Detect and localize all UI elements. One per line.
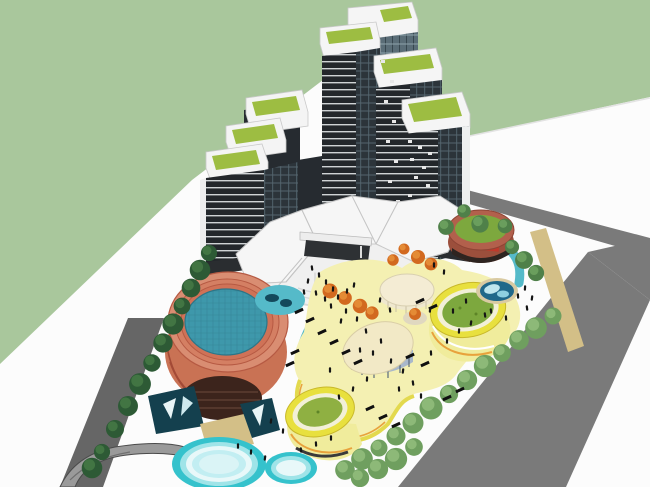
light_row-tree-highlight bbox=[407, 439, 417, 449]
dark_row-tree-highlight bbox=[165, 315, 177, 327]
green_cluster-tree-highlight bbox=[499, 220, 507, 228]
dark_row-tree-highlight bbox=[192, 261, 203, 272]
tower-window bbox=[381, 60, 385, 63]
person bbox=[356, 316, 359, 322]
orange-tree-highlight bbox=[354, 300, 362, 308]
person bbox=[505, 315, 508, 321]
dark_row-tree-highlight bbox=[131, 375, 143, 387]
orange-tree-highlight bbox=[324, 285, 332, 293]
person bbox=[380, 338, 383, 344]
dark_row-tree-highlight bbox=[203, 246, 212, 255]
orange-tree-highlight bbox=[367, 307, 374, 314]
person bbox=[420, 393, 422, 398]
green_cluster-tree-highlight bbox=[529, 266, 538, 275]
person bbox=[465, 298, 468, 304]
person bbox=[433, 262, 435, 267]
light_row-tree-highlight bbox=[388, 428, 398, 438]
light_row-tree-highlight bbox=[511, 332, 522, 343]
person bbox=[458, 328, 461, 334]
person bbox=[524, 285, 527, 291]
dark_row-tree-highlight bbox=[145, 356, 155, 366]
pool-2-center bbox=[276, 460, 306, 476]
orange-tree-highlight bbox=[388, 255, 394, 261]
person bbox=[359, 347, 362, 353]
dark_row-tree-highlight bbox=[184, 280, 194, 290]
light_row-tree-highlight bbox=[405, 414, 417, 426]
person bbox=[315, 441, 318, 447]
green_cluster-tree-highlight bbox=[440, 220, 449, 229]
orange-tree-highlight bbox=[412, 251, 420, 259]
person bbox=[372, 350, 374, 355]
person bbox=[337, 294, 339, 299]
tower-window bbox=[386, 140, 390, 143]
dark_row-tree-highlight bbox=[175, 299, 184, 308]
person bbox=[345, 308, 347, 313]
person bbox=[250, 449, 253, 455]
dark_row-tree-highlight bbox=[84, 459, 95, 470]
architectural-render bbox=[0, 0, 650, 487]
person bbox=[330, 435, 332, 440]
person bbox=[237, 443, 239, 448]
pool-1-center bbox=[199, 454, 239, 474]
light_row-tree-highlight bbox=[387, 450, 399, 462]
rooftop-pool bbox=[185, 289, 267, 355]
person bbox=[390, 358, 393, 364]
person bbox=[282, 428, 285, 434]
light_row-tree-highlight bbox=[372, 441, 381, 450]
person bbox=[325, 279, 327, 284]
light_row-tree-highlight bbox=[370, 460, 381, 471]
green_cluster-tree-highlight bbox=[473, 217, 483, 227]
person bbox=[366, 376, 369, 382]
dark_row-tree-highlight bbox=[120, 398, 131, 409]
light_row-tree-highlight bbox=[459, 371, 470, 382]
tower-window bbox=[408, 140, 412, 143]
pond-island-1 bbox=[265, 294, 279, 302]
oval-building-small-cream bbox=[380, 274, 434, 314]
light_row-tree-highlight bbox=[476, 357, 488, 369]
tower-window bbox=[390, 80, 394, 83]
person bbox=[517, 293, 520, 299]
person bbox=[446, 338, 448, 343]
pond-island-2 bbox=[280, 299, 292, 307]
light_row-tree-highlight bbox=[442, 386, 452, 396]
person bbox=[398, 386, 401, 392]
tower-window bbox=[428, 152, 432, 155]
person bbox=[332, 286, 335, 292]
dark_row-tree-highlight bbox=[108, 421, 118, 431]
person bbox=[443, 269, 446, 275]
dark_row-tree-highlight bbox=[96, 445, 105, 454]
east-roof-dot-2 bbox=[475, 313, 478, 316]
small-cream-roof bbox=[380, 274, 434, 306]
south-roof-dot bbox=[317, 411, 320, 414]
light_row-tree-highlight bbox=[337, 462, 348, 473]
light_row-tree-highlight bbox=[422, 398, 435, 411]
tower-window bbox=[418, 146, 422, 149]
tower-window bbox=[422, 166, 426, 169]
light_row-tree-highlight bbox=[353, 470, 363, 480]
tower-window bbox=[426, 184, 430, 187]
light_row-tree-highlight bbox=[546, 309, 555, 318]
green_cluster-tree-highlight bbox=[459, 205, 466, 212]
tower-window bbox=[408, 194, 412, 197]
orange-tree-highlight bbox=[340, 292, 348, 300]
orange-tree-highlight bbox=[410, 309, 417, 316]
tower-window bbox=[392, 120, 396, 123]
person bbox=[318, 272, 321, 278]
person bbox=[329, 367, 331, 372]
person bbox=[430, 350, 433, 356]
light_row-tree-highlight bbox=[353, 450, 365, 462]
green_cluster-tree-highlight bbox=[506, 241, 514, 249]
person bbox=[346, 288, 349, 294]
tower-window bbox=[388, 180, 392, 183]
green_cluster-tree-highlight bbox=[517, 252, 527, 262]
tower-window bbox=[394, 160, 398, 163]
light_row-tree-highlight bbox=[527, 319, 539, 331]
northeast-pond bbox=[476, 278, 518, 304]
person bbox=[429, 307, 432, 313]
pond-swirl-2 bbox=[497, 291, 509, 298]
east-roof-dot-1 bbox=[459, 307, 462, 310]
light_row-tree-highlight bbox=[495, 345, 505, 355]
person bbox=[452, 308, 454, 313]
tower-window bbox=[414, 176, 418, 179]
person bbox=[324, 296, 327, 302]
dark_row-tree-highlight bbox=[155, 335, 166, 346]
person bbox=[330, 303, 333, 309]
tower-window bbox=[410, 158, 414, 161]
tower-window bbox=[384, 100, 388, 103]
orange-tree-highlight bbox=[400, 244, 406, 250]
orange-tree-highlight bbox=[426, 259, 433, 266]
